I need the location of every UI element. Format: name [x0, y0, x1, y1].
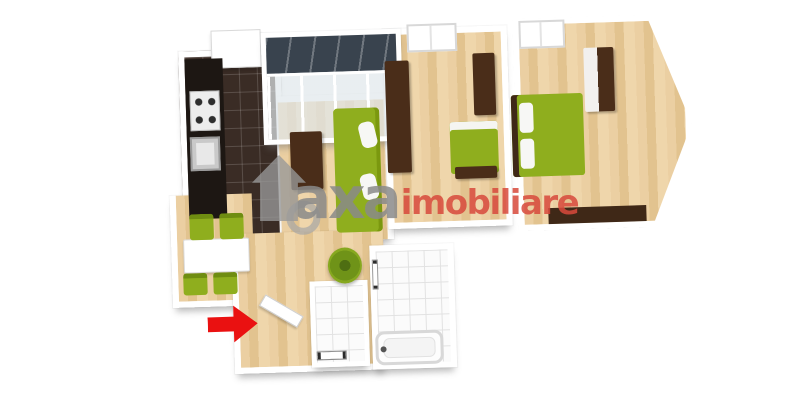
bed-pillow [519, 103, 534, 133]
stove-icon [189, 90, 220, 131]
apartment-plan [144, 0, 704, 404]
bedroom1-cabinet [472, 53, 496, 116]
bedroom1-bench [455, 166, 497, 179]
glass-roof [266, 34, 397, 74]
bed-pillow [520, 139, 535, 169]
dining-table [183, 238, 250, 274]
bedroom2-shelf [548, 205, 646, 224]
wc-radiator [317, 351, 347, 361]
tv-stand [290, 131, 324, 190]
sink-icon [190, 136, 221, 171]
bathtub [375, 329, 444, 365]
bedroom2-window [518, 20, 565, 49]
bedroom2-double-bed [511, 93, 586, 177]
bedroom1-window [406, 23, 457, 53]
dining-chair [183, 273, 208, 296]
bedroom1-wardrobe [385, 60, 413, 173]
bedroom2-wardrobe [583, 47, 615, 112]
sofa-pillow [357, 120, 379, 149]
sofa-pillow [359, 172, 381, 201]
towel-rail [372, 259, 379, 289]
room-balcony [261, 29, 404, 145]
dining-chair [219, 213, 244, 240]
dining-chair [189, 214, 214, 241]
floorplan-image: axa imobiliare [0, 0, 800, 404]
dining-chair [213, 272, 238, 295]
sofa [333, 107, 383, 232]
